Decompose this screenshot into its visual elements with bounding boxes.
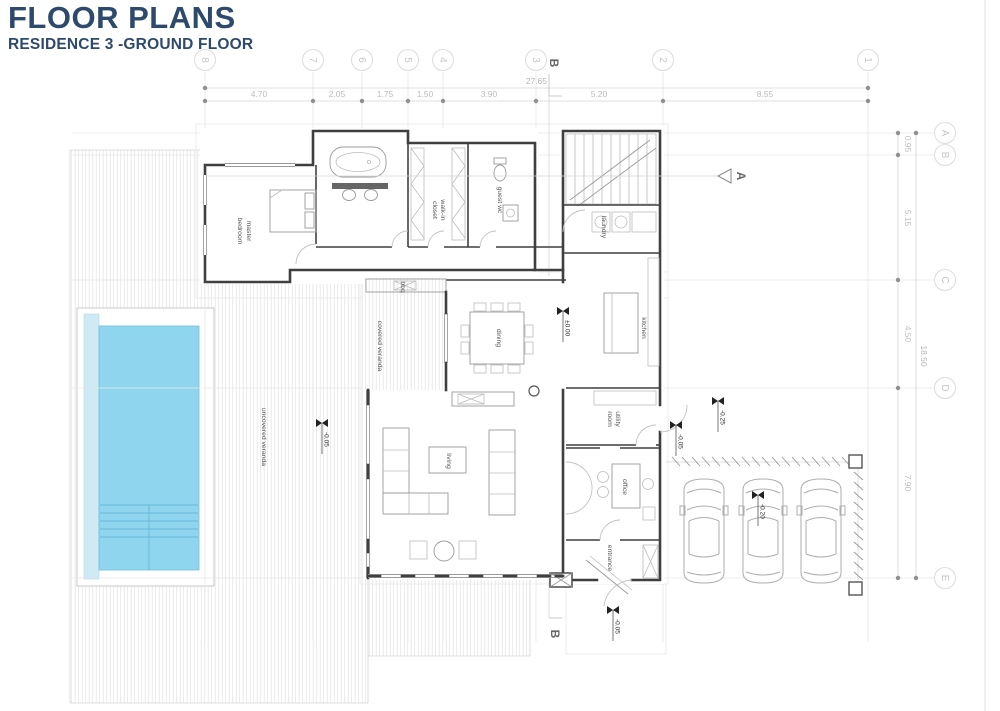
- pergola-post: [849, 582, 862, 595]
- grid-row-c: C: [939, 276, 950, 283]
- dim-top-1: 2.05: [329, 89, 346, 99]
- right-dimensions: 0.95 5.15 4.50 7.90 18.50: [896, 131, 929, 580]
- dim-top-5: 5.20: [591, 89, 608, 99]
- grid-col-6: 6: [356, 57, 367, 63]
- level-marker-5: -0.05: [607, 606, 621, 641]
- grid-col-4: 4: [437, 57, 448, 63]
- dim-top-overall: 27.65: [526, 76, 548, 86]
- dim-right-overall: 18.50: [919, 345, 929, 367]
- grid-row-b: B: [939, 152, 950, 159]
- room-label-uncovered-veranda: uncovered veranda: [260, 408, 267, 466]
- dim-right-1: 5.15: [903, 210, 913, 227]
- svg-text:-0.05: -0.05: [323, 432, 330, 447]
- utility-exterior-door: [660, 405, 687, 432]
- dim-top-4: 3.90: [481, 89, 498, 99]
- floor-plan-canvas: 27.65 4.70 2.05 1.75 1.50 3.90 5.20 8.55…: [0, 0, 1000, 711]
- page-header: FLOOR PLANS RESIDENCE 3 -GROUND FLOOR: [8, 2, 253, 54]
- grid-col-7: 7: [307, 57, 318, 63]
- svg-text:-0.05: -0.05: [677, 434, 684, 449]
- grid-row-d: D: [939, 384, 950, 391]
- room-label-living: living: [445, 453, 452, 469]
- pergola-hatch-right: [854, 472, 863, 580]
- dim-top-2: 1.75: [377, 89, 394, 99]
- grid-col-8: 8: [199, 57, 210, 63]
- room-label-laundry: laundry: [600, 216, 607, 239]
- section-b-bottom-label: B: [548, 630, 562, 639]
- svg-text:bedroom: bedroom: [236, 218, 243, 245]
- top-grid-labels: 8 7 6 5 4 3 2 1: [199, 57, 873, 63]
- dim-right-2: 4.50: [903, 326, 913, 343]
- svg-text:-0.25: -0.25: [719, 410, 726, 425]
- car-1: [680, 479, 728, 583]
- grid-row-a: A: [939, 130, 950, 137]
- level-marker-2: -0.25: [712, 397, 726, 432]
- room-label-office: office: [621, 479, 628, 495]
- svg-text:-0.20: -0.20: [759, 504, 766, 519]
- pergola-post: [849, 455, 862, 468]
- page-title: FLOOR PLANS: [8, 2, 253, 35]
- right-grid-labels: A B C D E: [939, 130, 950, 582]
- page-subtitle: RESIDENCE 3 -GROUND FLOOR: [8, 36, 253, 54]
- column: [529, 386, 539, 396]
- room-label-utility-room: utility: [614, 411, 621, 427]
- dim-top-6: 8.55: [757, 89, 774, 99]
- carport: [666, 455, 863, 595]
- svg-text:closet: closet: [431, 201, 438, 219]
- grid-col-2: 2: [657, 57, 668, 63]
- room-label-master-bedroom: master: [245, 221, 252, 243]
- pergola-hatch-top: [672, 457, 850, 466]
- section-a-label: A: [734, 172, 748, 181]
- car-3: [797, 479, 845, 583]
- dim-top-3: 1.50: [417, 89, 434, 99]
- dim-right-0: 0.95: [903, 136, 913, 153]
- room-label-guest-wc: guest wc: [496, 187, 503, 214]
- svg-text:-0.05: -0.05: [614, 619, 621, 634]
- pool: [77, 308, 214, 586]
- room-label-bbq: bbq: [399, 281, 406, 293]
- top-dimensions: 27.65 4.70 2.05 1.75 1.50 3.90 5.20 8.55: [203, 76, 870, 103]
- svg-text:±0.00: ±0.00: [564, 320, 571, 337]
- grid-col-5: 5: [402, 57, 413, 63]
- dim-top-0: 4.70: [251, 89, 268, 99]
- dim-right-3: 7.90: [903, 475, 913, 492]
- room-label-kitchen: kitchen: [640, 317, 647, 339]
- room-label-entrance: entrance: [606, 545, 613, 572]
- room-label-dining: dining: [495, 329, 502, 347]
- grid-row-e: E: [939, 575, 950, 582]
- svg-text:room: room: [606, 411, 613, 427]
- room-label-walk-in-closet: walk-in: [439, 198, 446, 220]
- room-label-covered-veranda: covered veranda: [376, 321, 383, 372]
- section-b-top-label: B: [547, 59, 561, 68]
- grid-col-3: 3: [530, 57, 541, 63]
- covered-veranda-area: [363, 278, 446, 390]
- right-grid-bubbles: [935, 123, 956, 589]
- pool-overflow-edge: [84, 314, 99, 579]
- grid-col-1: 1: [862, 57, 873, 63]
